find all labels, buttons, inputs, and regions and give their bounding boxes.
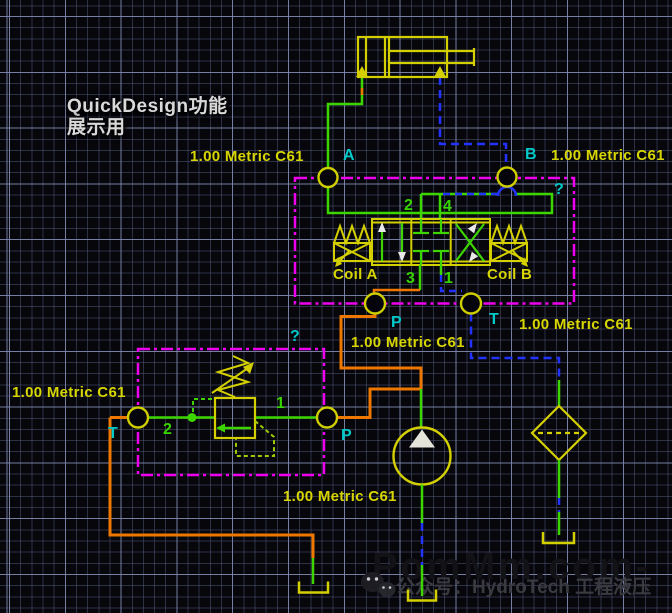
size-label-relief-t[interactable]: 1.00 Metric C61: [12, 384, 126, 401]
port-b-circle[interactable]: [498, 168, 517, 187]
solenoid-coil-b[interactable]: [491, 226, 528, 267]
line-port3-to-p[interactable]: [374, 290, 420, 294]
relief-port-p-circle[interactable]: [317, 408, 337, 428]
port-label-p[interactable]: P: [391, 314, 402, 332]
port-label-t[interactable]: T: [489, 311, 499, 329]
line-valve-top-net[interactable]: [328, 186, 552, 220]
supply-line-to-relief[interactable]: [337, 389, 421, 418]
relief-port-label-p[interactable]: P: [341, 427, 352, 445]
solenoid-coil-a[interactable]: [334, 226, 370, 267]
size-label-port-p[interactable]: 1.00 Metric C61: [351, 334, 465, 351]
pilot-line-cylinder-b[interactable]: [440, 77, 506, 169]
coil-a-label[interactable]: Coil A: [333, 266, 378, 283]
dcv-port-label-3[interactable]: 3: [406, 270, 415, 288]
relief-port-t-circle[interactable]: [128, 408, 148, 428]
dcv-port-label-2[interactable]: 2: [404, 197, 413, 215]
filter-symbol[interactable]: [532, 406, 586, 460]
spring-symbol: [218, 356, 248, 397]
size-label-port-t[interactable]: 1.00 Metric C61: [519, 316, 633, 333]
size-label-pump[interactable]: 1.00 Metric C61: [283, 488, 397, 505]
pilot-line-relief-left: [193, 399, 214, 412]
cylinder-port-b[interactable]: [434, 66, 446, 77]
unknown-marker-relief[interactable]: ?: [290, 328, 300, 346]
relief-port-label-2[interactable]: 2: [163, 421, 172, 439]
valve-position-blocked: [413, 219, 449, 265]
unknown-marker-dcv[interactable]: ?: [554, 181, 564, 199]
wechat-icon: [361, 572, 396, 597]
junction-dot: [188, 413, 197, 422]
hydraulic-cylinder[interactable]: [356, 37, 474, 77]
size-label-port-a[interactable]: 1.00 Metric C61: [190, 148, 304, 165]
drawing-title-line2[interactable]: 展示用: [67, 112, 126, 139]
port-p-circle[interactable]: [365, 294, 385, 314]
schematic-canvas: PomMm.com- 公众号：HydroTech 工程液压: [0, 0, 672, 613]
relief-valve[interactable]: [148, 356, 317, 456]
dcv-boundary-box[interactable]: [295, 178, 574, 304]
port-label-a[interactable]: A: [343, 147, 355, 165]
valve-position-crossed: [456, 221, 484, 265]
dcv-port-label-1[interactable]: 1: [444, 270, 453, 288]
port-t-circle[interactable]: [461, 294, 481, 314]
supply-line-p[interactable]: [341, 314, 421, 389]
port-a-circle[interactable]: [319, 168, 338, 187]
size-label-port-b[interactable]: 1.00 Metric C61: [551, 147, 665, 164]
dcv-port-label-4[interactable]: 4: [443, 198, 452, 216]
pump-symbol[interactable]: [394, 428, 451, 485]
line-jump-arc: [498, 187, 516, 196]
relief-port-label-1[interactable]: 1: [276, 395, 285, 413]
valve-position-parallel: [378, 222, 406, 262]
port-label-b[interactable]: B: [525, 146, 537, 164]
relief-port-label-t[interactable]: T: [108, 425, 118, 443]
directional-valve[interactable]: [334, 219, 528, 267]
coil-b-label[interactable]: Coil B: [487, 266, 532, 283]
